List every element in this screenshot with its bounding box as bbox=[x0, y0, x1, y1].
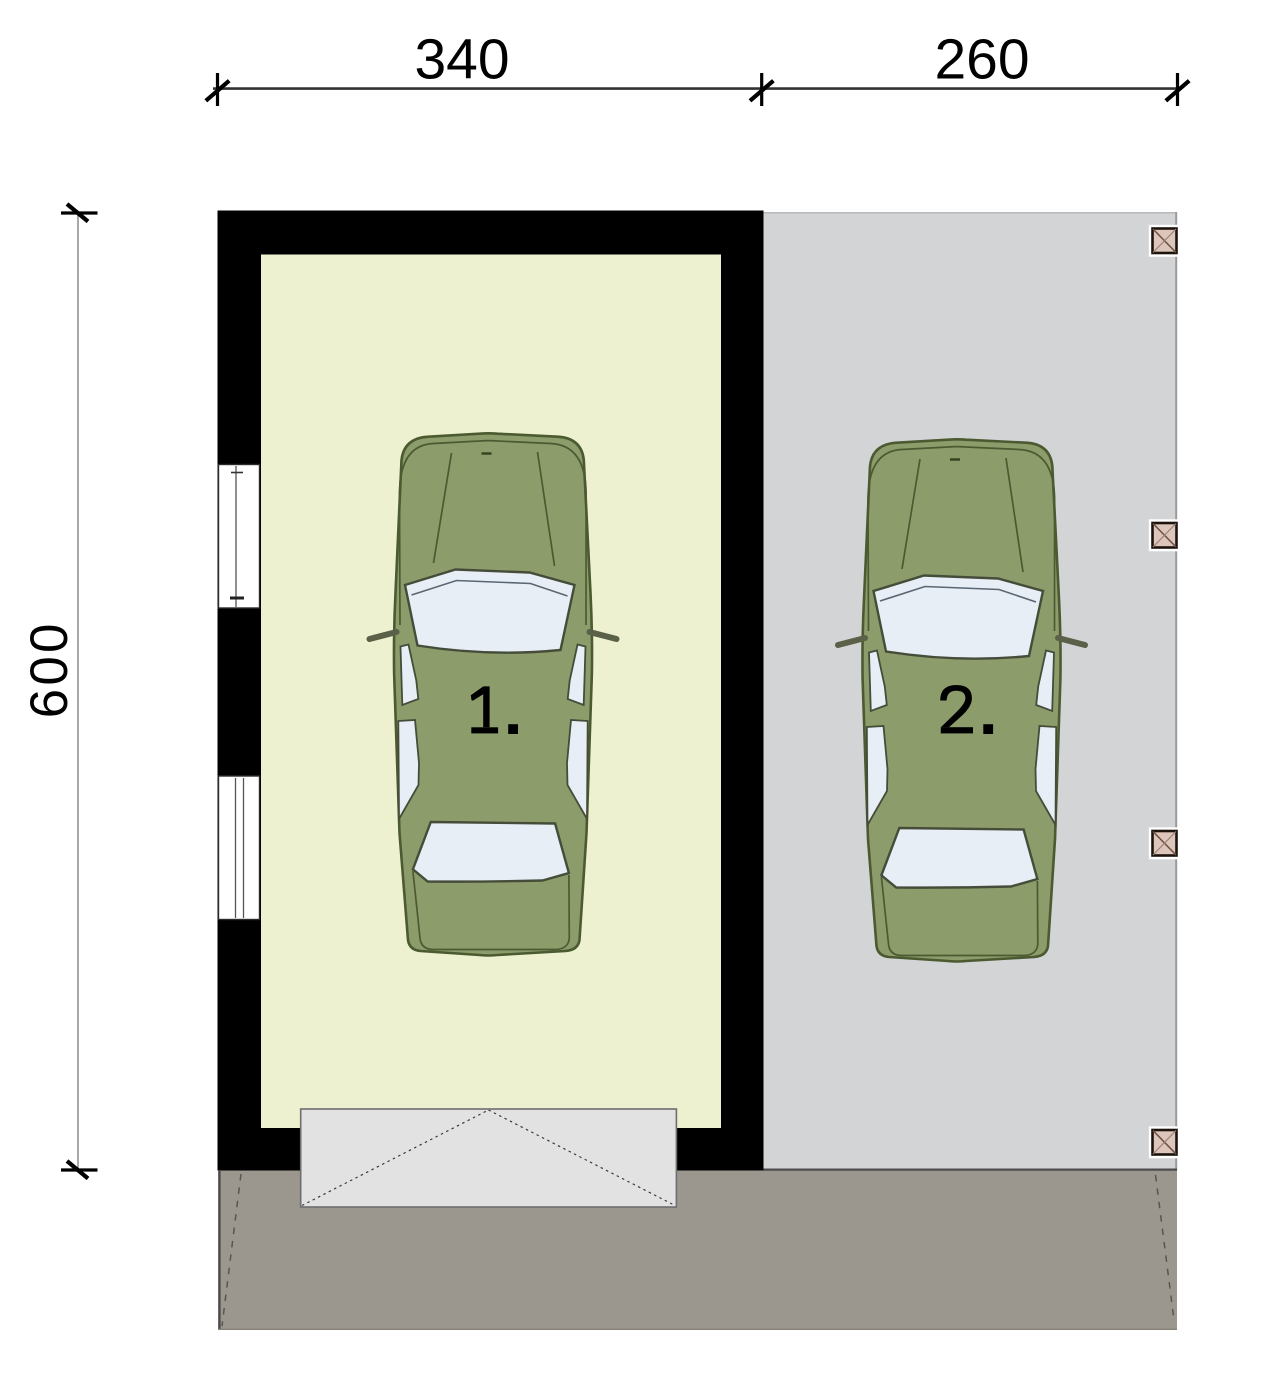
svg-text:600: 600 bbox=[20, 620, 79, 718]
svg-text:340: 340 bbox=[414, 28, 509, 92]
svg-text:260: 260 bbox=[934, 28, 1029, 92]
